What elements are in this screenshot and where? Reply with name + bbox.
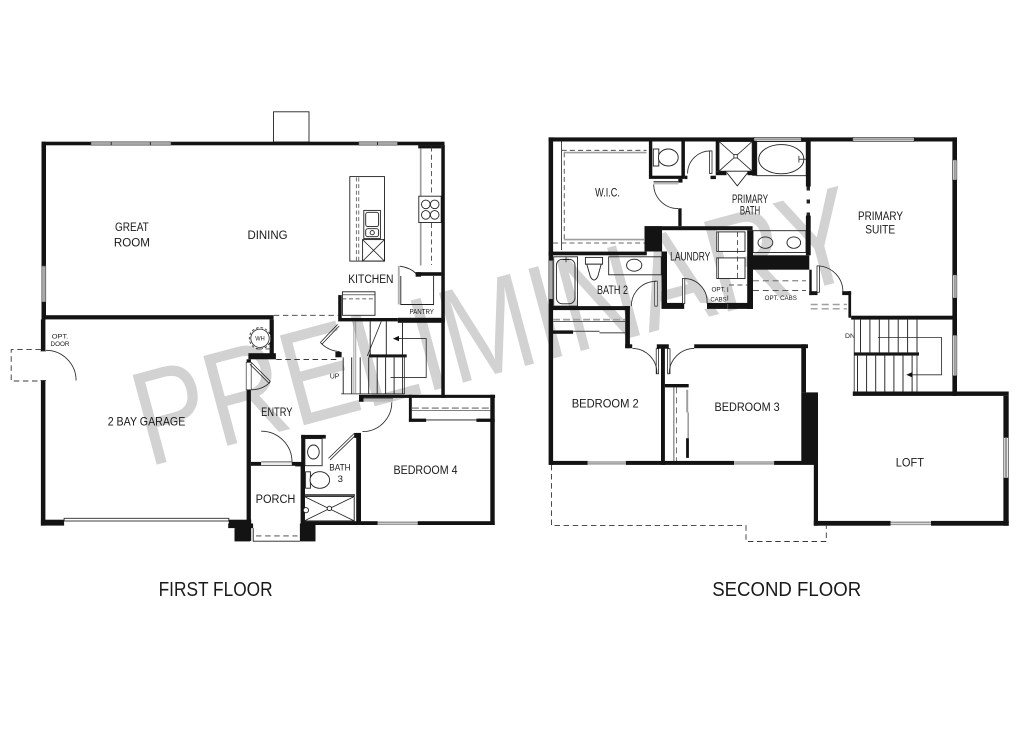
- svg-text:OPT. CABS: OPT. CABS: [765, 295, 798, 302]
- svg-text:SUITE: SUITE: [865, 223, 895, 237]
- svg-text:ROOM: ROOM: [114, 235, 150, 249]
- svg-text:UP: UP: [330, 373, 340, 380]
- svg-text:BEDROOM 4: BEDROOM 4: [394, 463, 458, 477]
- svg-text:3: 3: [338, 474, 343, 485]
- svg-text:GREAT: GREAT: [115, 220, 149, 234]
- svg-text:BEDROOM 2: BEDROOM 2: [572, 397, 639, 411]
- svg-text:CABS: CABS: [710, 296, 727, 303]
- svg-text:W.I.C.: W.I.C.: [595, 186, 620, 200]
- svg-text:PORCH: PORCH: [256, 492, 296, 506]
- svg-text:DOOR: DOOR: [51, 341, 70, 348]
- svg-text:BATH: BATH: [740, 203, 760, 217]
- svg-text:BATH 2: BATH 2: [597, 283, 628, 297]
- svg-text:WH: WH: [255, 337, 265, 343]
- svg-text:2 BAY GARAGE: 2 BAY GARAGE: [108, 414, 186, 428]
- svg-text:LAUNDRY: LAUNDRY: [670, 249, 710, 263]
- svg-text:BATH: BATH: [329, 463, 350, 473]
- svg-text:OPT.: OPT.: [711, 287, 725, 294]
- svg-text:PANTRY: PANTRY: [410, 307, 435, 316]
- svg-text:PRIMARY: PRIMARY: [858, 209, 903, 223]
- svg-text:FIRST FLOOR: FIRST FLOOR: [159, 578, 273, 601]
- svg-text:SECOND FLOOR: SECOND FLOOR: [712, 578, 861, 601]
- svg-text:KITCHEN: KITCHEN: [348, 272, 393, 286]
- svg-text:DINING: DINING: [248, 228, 288, 242]
- svg-text:LOFT: LOFT: [896, 456, 925, 470]
- svg-text:DN: DN: [845, 333, 855, 340]
- svg-text:ENTRY: ENTRY: [261, 405, 292, 419]
- svg-text:OPT.: OPT.: [52, 334, 69, 341]
- svg-text:BEDROOM 3: BEDROOM 3: [715, 400, 780, 414]
